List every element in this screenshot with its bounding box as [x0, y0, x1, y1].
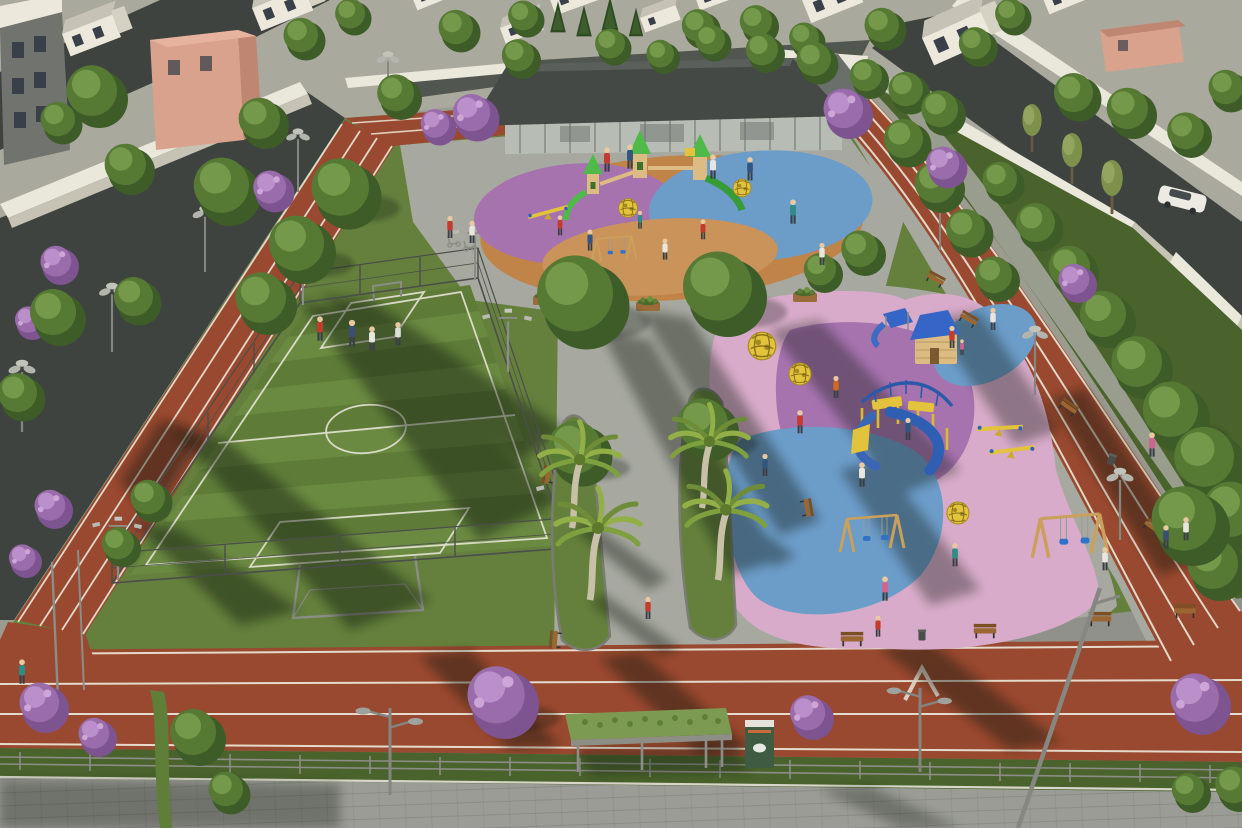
- trash-bin: [918, 630, 926, 641]
- climbing-sphere: [733, 179, 751, 197]
- kiosk: [745, 720, 774, 768]
- climbing-sphere: [789, 363, 811, 385]
- climbing-sphere: [748, 332, 776, 360]
- park-render: [0, 0, 1242, 828]
- climbing-sphere: [619, 199, 638, 218]
- render-viewport: [0, 0, 1242, 828]
- climbing-sphere: [947, 502, 969, 524]
